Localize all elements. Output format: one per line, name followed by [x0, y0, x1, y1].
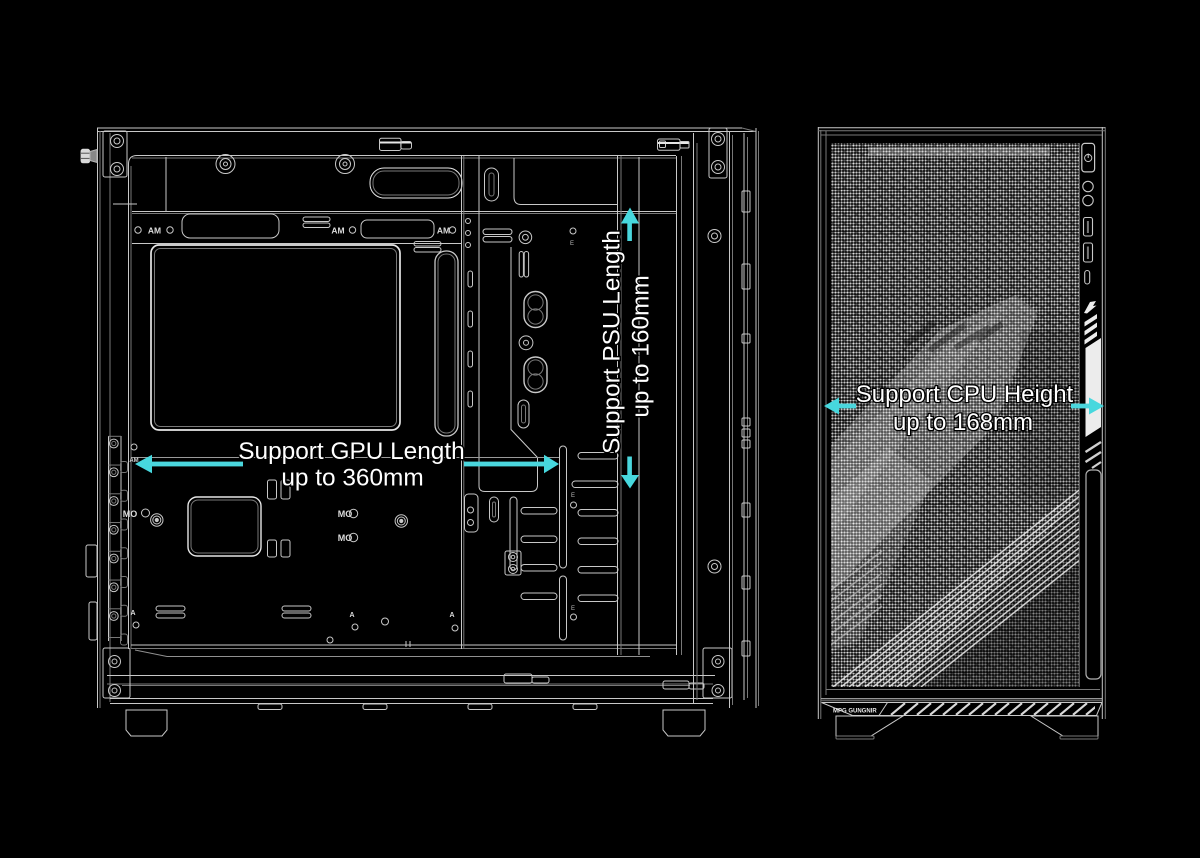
svg-text:A: A — [349, 612, 354, 619]
svg-text:Support PSU Length: Support PSU Length — [599, 230, 626, 454]
svg-text:A: A — [130, 610, 135, 617]
svg-text:Support GPU Length: Support GPU Length — [238, 438, 464, 465]
svg-text:MO: MO — [123, 509, 138, 519]
svg-text:A: A — [449, 612, 454, 619]
svg-text:up to 168mm: up to 168mm — [893, 409, 1033, 436]
svg-text:AM: AM — [148, 226, 161, 236]
svg-text:E: E — [571, 493, 575, 499]
svg-text:E: E — [571, 606, 575, 612]
svg-text:E: E — [570, 241, 574, 247]
svg-text:MPG GUNGNIR: MPG GUNGNIR — [833, 709, 877, 715]
svg-text:Support CPU Height: Support CPU Height — [856, 381, 1074, 408]
svg-text:up to 160mm: up to 160mm — [628, 275, 655, 417]
svg-text:AM: AM — [437, 226, 450, 236]
svg-text:AM: AM — [331, 226, 344, 236]
svg-text:up to 360mm: up to 360mm — [281, 465, 423, 492]
